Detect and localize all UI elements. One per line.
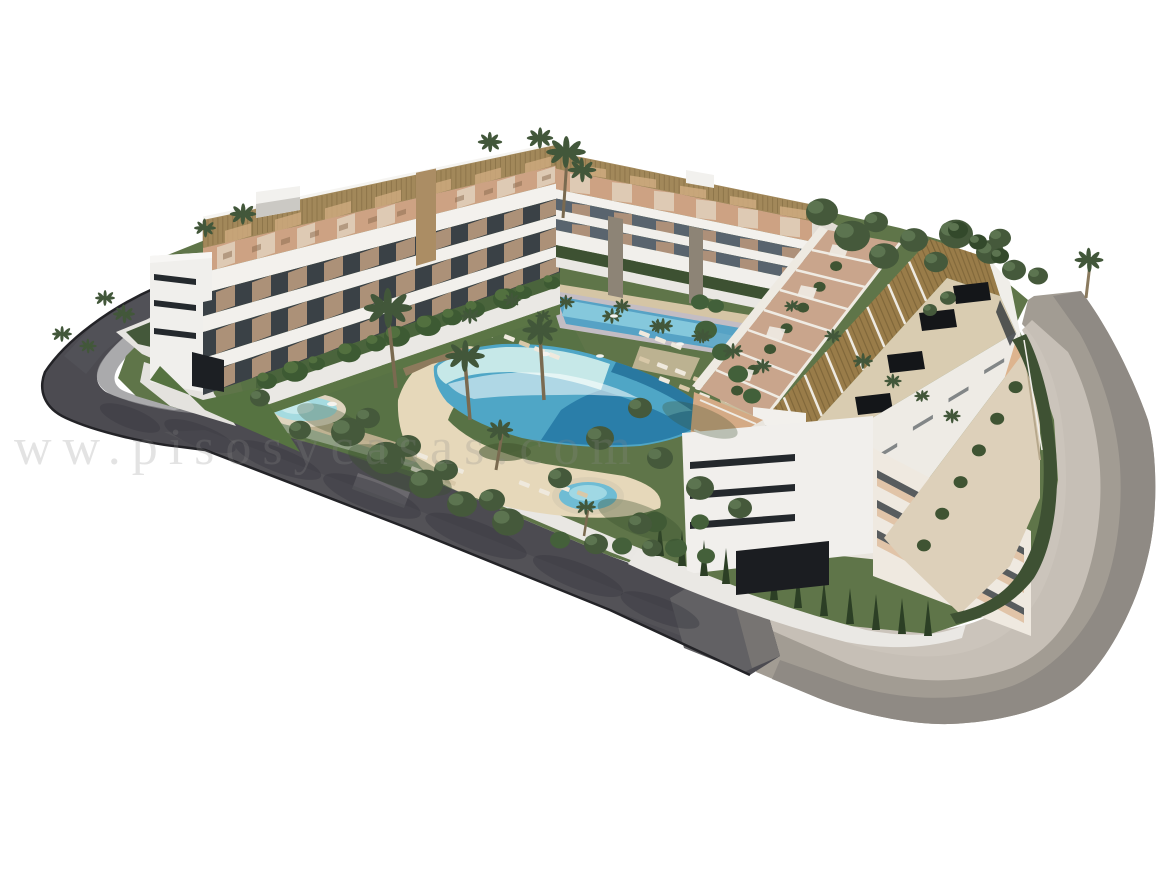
svg-text:ww.pisosycasas.com: ww.pisosycasas.com	[14, 419, 642, 476]
